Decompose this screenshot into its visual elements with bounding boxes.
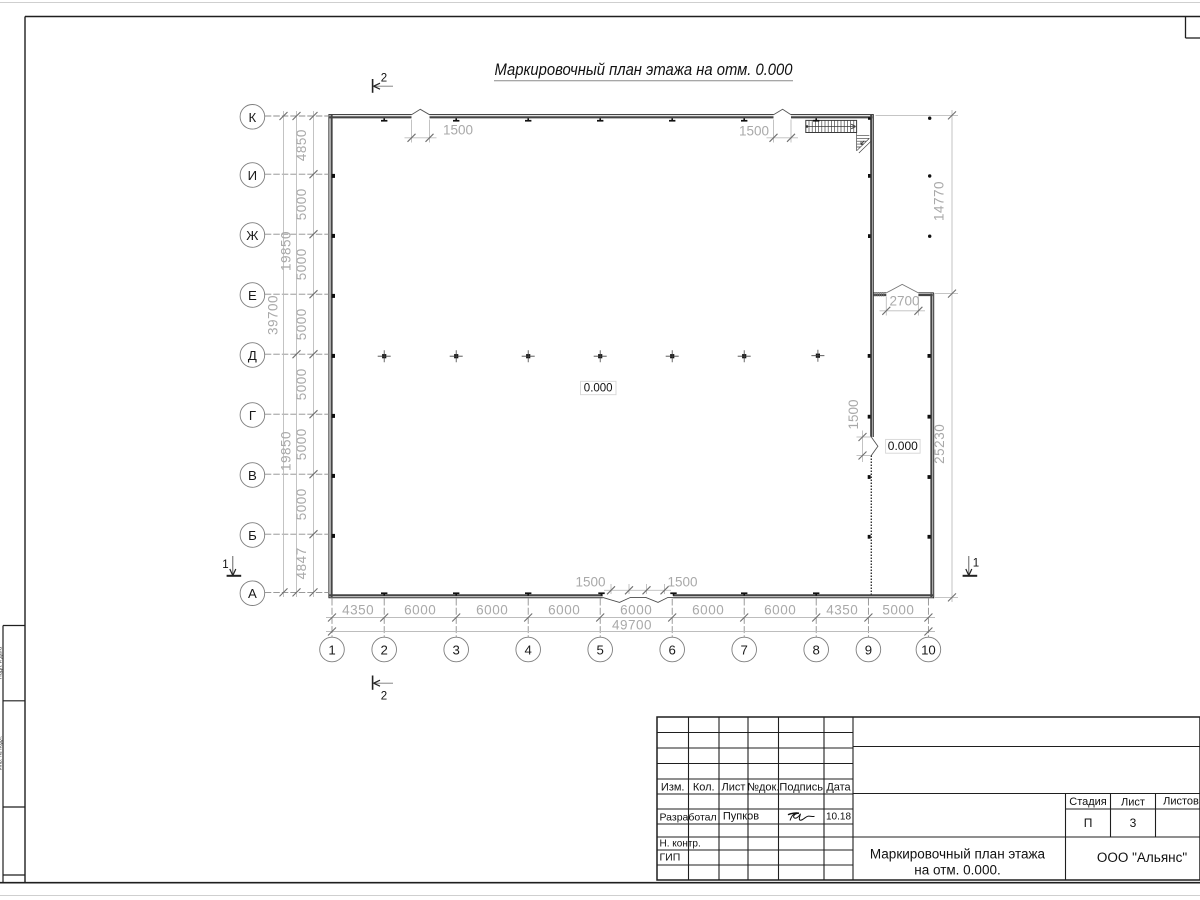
svg-text:1500: 1500 <box>575 575 605 590</box>
svg-text:1: 1 <box>328 642 335 657</box>
svg-text:ГИП: ГИП <box>660 852 681 864</box>
svg-text:6000: 6000 <box>476 603 508 618</box>
svg-text:5000: 5000 <box>294 188 309 220</box>
svg-text:8: 8 <box>813 642 820 657</box>
svg-text:4350: 4350 <box>342 603 374 618</box>
svg-text:И: И <box>248 168 257 183</box>
svg-text:5000: 5000 <box>294 368 309 400</box>
svg-text:1: 1 <box>973 558 979 570</box>
svg-text:П: П <box>1084 816 1093 830</box>
svg-text:К: К <box>249 110 257 125</box>
svg-text:3: 3 <box>453 642 460 657</box>
svg-text:Инв. № подл.: Инв. № подл. <box>0 735 4 770</box>
svg-text:Стадия: Стадия <box>1069 796 1107 808</box>
svg-text:1500: 1500 <box>443 123 473 138</box>
svg-text:19850: 19850 <box>279 431 294 471</box>
svg-text:2: 2 <box>381 73 387 85</box>
svg-text:9: 9 <box>865 642 872 657</box>
svg-text:В: В <box>248 468 257 483</box>
svg-text:5000: 5000 <box>294 428 309 460</box>
svg-text:10.18: 10.18 <box>826 812 851 823</box>
svg-text:Маркировочный план этажа на от: Маркировочный план этажа на отм. 0.000 <box>495 61 794 79</box>
svg-text:Листов: Листов <box>1163 796 1199 808</box>
svg-text:1500: 1500 <box>667 575 697 590</box>
svg-text:1500: 1500 <box>739 124 769 139</box>
svg-text:Ж: Ж <box>246 228 258 243</box>
svg-text:1: 1 <box>222 559 228 571</box>
svg-text:Разработал: Разработал <box>660 812 717 824</box>
svg-text:6000: 6000 <box>692 603 724 618</box>
svg-text:4850: 4850 <box>294 129 309 161</box>
svg-text:5000: 5000 <box>294 308 309 340</box>
svg-text:Е: Е <box>248 288 257 303</box>
svg-text:4: 4 <box>525 642 532 657</box>
svg-text:Б: Б <box>248 528 257 543</box>
svg-text:Н. контр.: Н. контр. <box>660 839 701 850</box>
svg-text:6000: 6000 <box>764 603 796 618</box>
svg-text:6: 6 <box>669 642 676 657</box>
svg-text:Маркировочный план этажа: Маркировочный план этажа <box>870 847 1046 862</box>
svg-text:Г: Г <box>249 408 256 423</box>
svg-text:Изм.: Изм. <box>661 782 685 794</box>
svg-text:Кол.: Кол. <box>693 782 715 794</box>
svg-text:Д: Д <box>248 348 257 363</box>
svg-text:6000: 6000 <box>548 603 580 618</box>
svg-text:Подпись: Подпись <box>779 782 823 794</box>
svg-text:4350: 4350 <box>826 603 858 618</box>
svg-text:6000: 6000 <box>620 603 652 618</box>
svg-text:ООО "Альянс": ООО "Альянс" <box>1097 850 1187 865</box>
svg-text:А: А <box>248 586 257 601</box>
svg-text:Пупков: Пупков <box>723 811 759 823</box>
svg-text:Дата: Дата <box>826 782 851 794</box>
svg-text:4847: 4847 <box>294 547 309 579</box>
svg-text:на отм. 0.000.: на отм. 0.000. <box>914 863 1000 878</box>
svg-text:5000: 5000 <box>294 488 309 520</box>
svg-text:19850: 19850 <box>279 231 294 271</box>
svg-text:6000: 6000 <box>404 603 436 618</box>
svg-text:5: 5 <box>597 642 604 657</box>
svg-text:Лист: Лист <box>722 782 746 794</box>
svg-text:14770: 14770 <box>931 181 946 221</box>
svg-text:5000: 5000 <box>294 248 309 280</box>
svg-text:2700: 2700 <box>889 294 919 309</box>
svg-text:25230: 25230 <box>932 424 947 464</box>
svg-text:0.000: 0.000 <box>888 439 918 453</box>
svg-text:7: 7 <box>741 642 748 657</box>
svg-text:2: 2 <box>381 691 387 703</box>
svg-text:10: 10 <box>921 642 936 657</box>
svg-text:№док.: №док. <box>747 782 779 794</box>
svg-text:2: 2 <box>381 642 388 657</box>
svg-text:3: 3 <box>1130 816 1137 830</box>
svg-text:49700: 49700 <box>612 618 652 633</box>
svg-text:39700: 39700 <box>266 295 281 335</box>
svg-text:Лист: Лист <box>1121 797 1145 809</box>
svg-text:1500: 1500 <box>846 399 861 429</box>
svg-text:5000: 5000 <box>882 603 914 618</box>
svg-text:0.000: 0.000 <box>584 383 613 395</box>
svg-text:Подп. и дата: Подп. и дата <box>0 646 4 679</box>
